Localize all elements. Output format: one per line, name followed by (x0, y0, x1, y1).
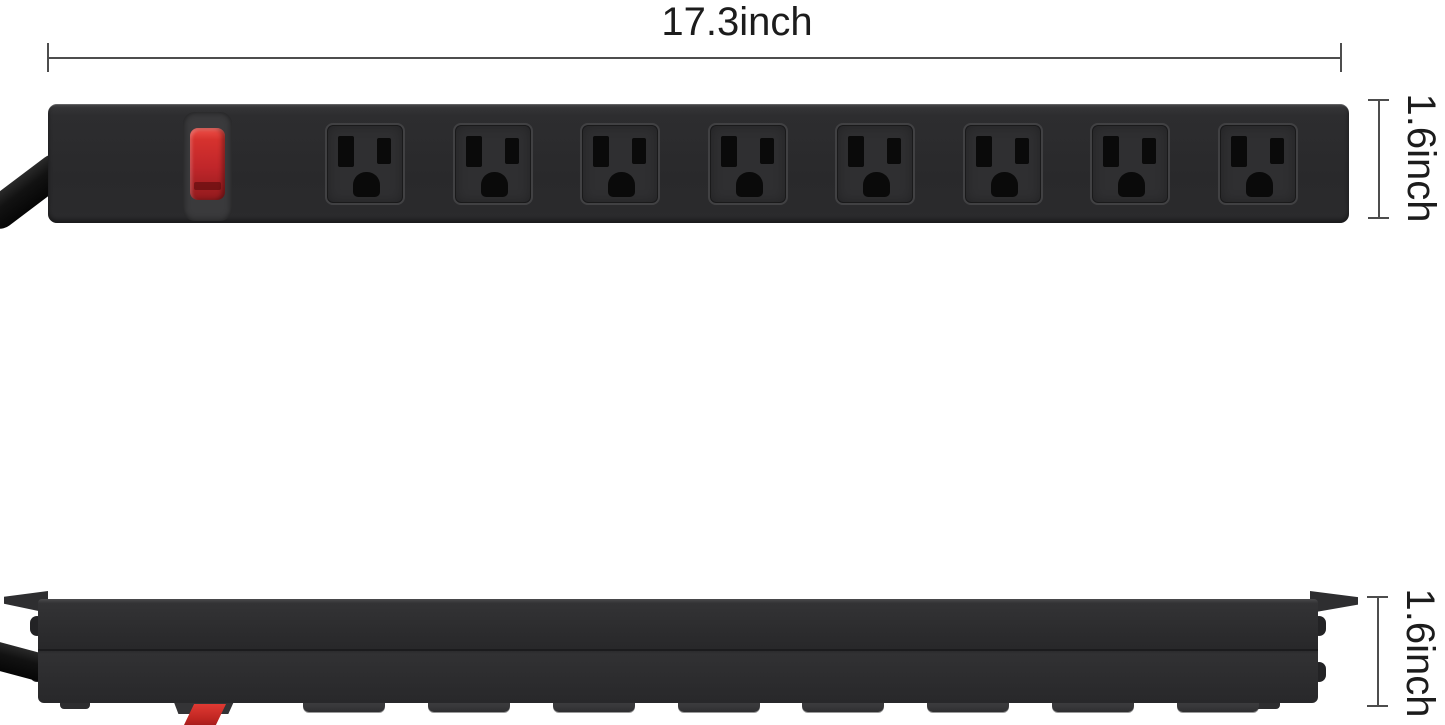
outlet-slot-neutral (466, 136, 482, 167)
width-dimension-label: 17.3inch (661, 2, 812, 42)
outlet-slot-hot (632, 138, 646, 164)
outlet-slot-hot (887, 138, 901, 164)
outlet-ground-hole (353, 172, 380, 197)
housing-seam (38, 649, 1318, 651)
outlet-ground-hole (481, 172, 508, 197)
outlet-slot-neutral (976, 136, 992, 167)
width-dimension-tick-right (1340, 43, 1342, 72)
outlet-ground-hole (1246, 172, 1273, 197)
height-dimension-tick-upper-2 (1367, 596, 1388, 598)
outlet (453, 123, 533, 205)
height-dimension-tick-upper (1368, 99, 1389, 101)
outlet (835, 123, 915, 205)
outlet-ground-hole (863, 172, 890, 197)
width-dimension-tick-left (47, 43, 49, 72)
power-switch-marking (194, 182, 221, 190)
outlet (708, 123, 788, 205)
outlet-slot-hot (505, 138, 519, 164)
outlet (1090, 123, 1170, 205)
width-dimension-line (48, 57, 1341, 59)
height-dimension-line-top (1378, 100, 1380, 219)
outlet-slot-hot (1015, 138, 1029, 164)
height-dimension-line-bottom (1377, 597, 1379, 707)
outlet (1218, 123, 1298, 205)
height-dimension-tick-lower (1368, 217, 1389, 219)
outlet-slot-neutral (338, 136, 354, 167)
outlet-ground-hole (991, 172, 1018, 197)
outlet-slot-neutral (593, 136, 609, 167)
power-switch-rocker (190, 128, 225, 200)
outlet-slot-hot (377, 138, 391, 164)
height-dimension-tick-lower-2 (1367, 705, 1388, 707)
outlet (580, 123, 660, 205)
outlet-slot-neutral (1231, 136, 1247, 167)
outlet-slot-neutral (848, 136, 864, 167)
outlet-slot-neutral (721, 136, 737, 167)
outlet-slot-hot (760, 138, 774, 164)
product-dimension-image: 17.3inch 1.6inch 1.6inch (0, 0, 1445, 725)
height-dimension-label-bottom: 1.6inch (1400, 589, 1440, 718)
outlet-slot-hot (1270, 138, 1284, 164)
outlet-ground-hole (608, 172, 635, 197)
outlet-ground-hole (1118, 172, 1145, 197)
outlet (963, 123, 1043, 205)
outlet-slot-hot (1142, 138, 1156, 164)
outlet-ground-hole (736, 172, 763, 197)
outlet (325, 123, 405, 205)
height-dimension-label-top: 1.6inch (1401, 94, 1441, 223)
power-strip-side-view (38, 599, 1318, 703)
outlet-slot-neutral (1103, 136, 1119, 167)
